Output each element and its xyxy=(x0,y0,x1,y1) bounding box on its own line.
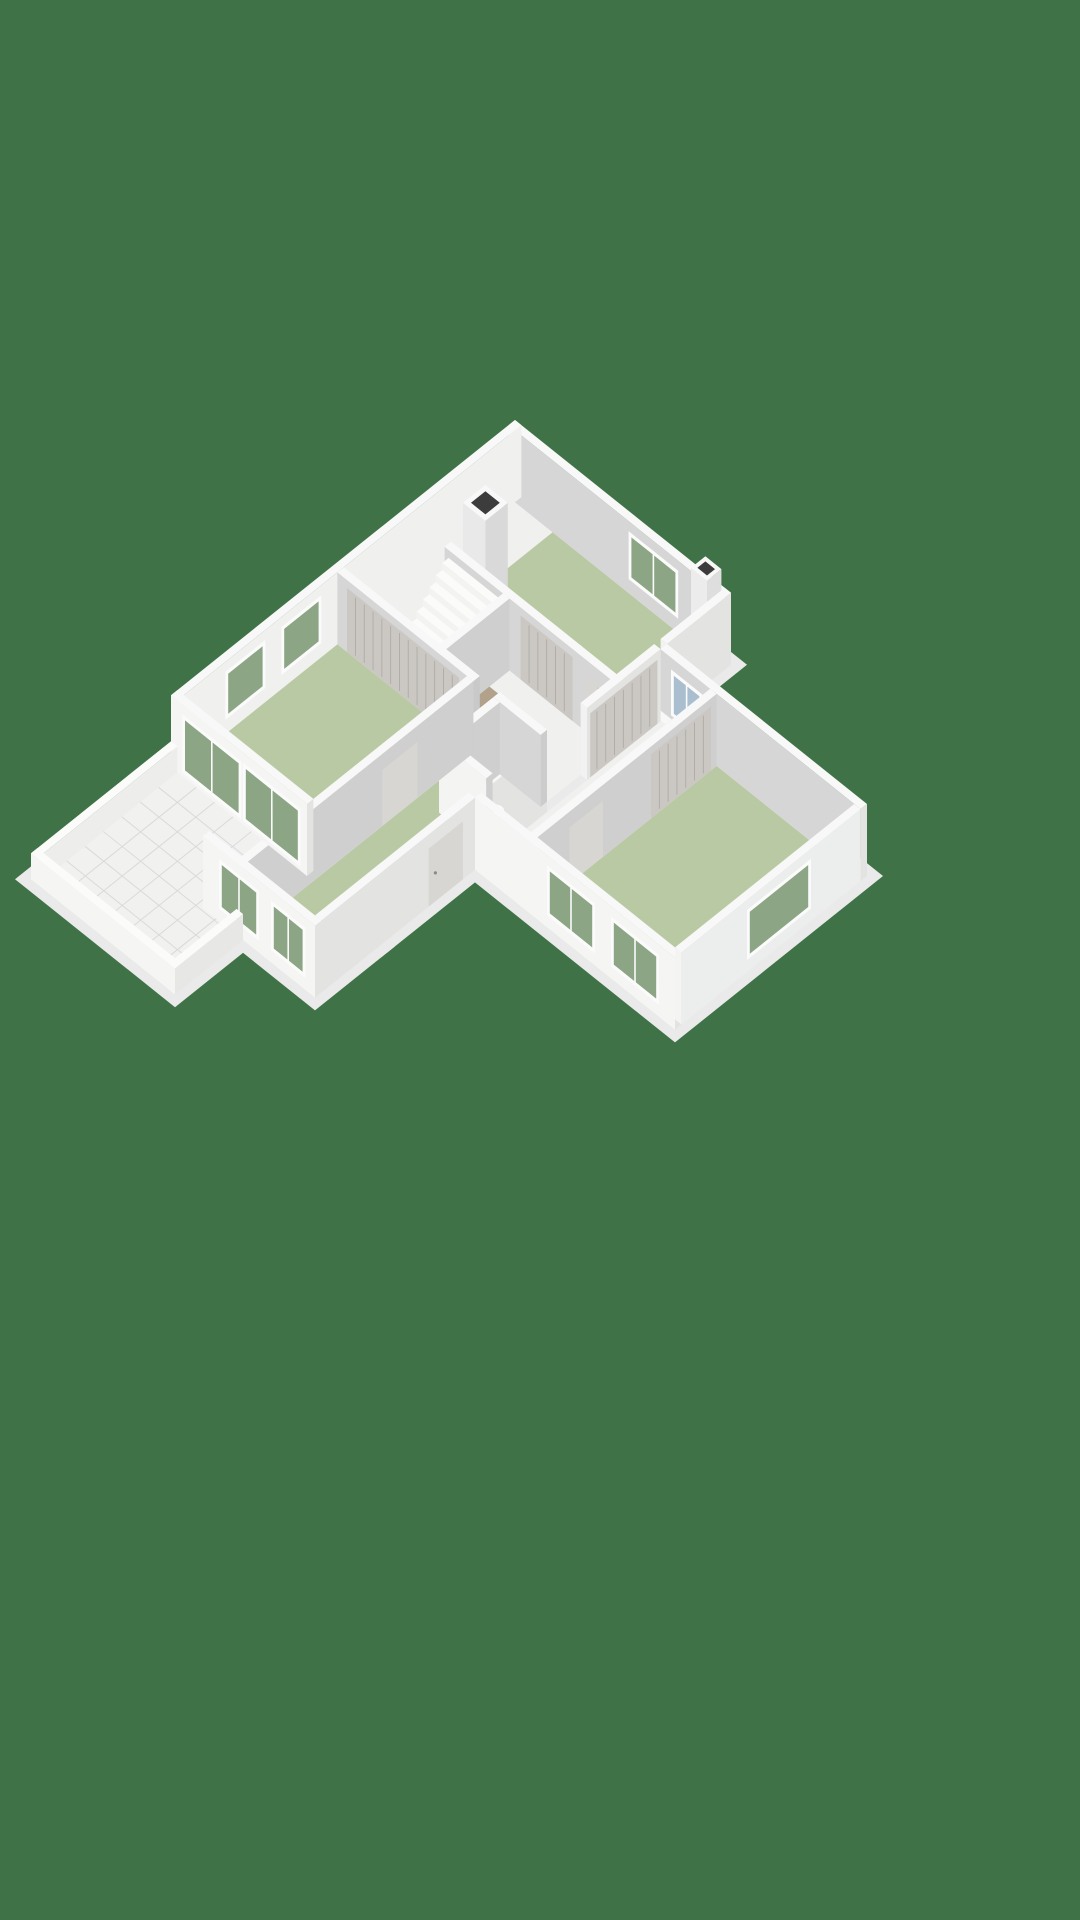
closet-east-bedroom-groove xyxy=(668,743,669,802)
closet-top-bedroom-groove xyxy=(546,639,547,698)
wall-wing-north-east-face xyxy=(861,804,867,881)
closet-wing-corridor-groove xyxy=(605,704,606,763)
door-handle xyxy=(434,871,437,874)
floorplan-canvas xyxy=(0,0,1080,1920)
closet-east-bedroom-groove xyxy=(703,715,704,774)
closet-wing-corridor-groove xyxy=(597,711,598,770)
closet-east-bedroom-groove xyxy=(659,750,660,809)
closet-living-room-groove xyxy=(381,619,382,678)
floorplan-svg xyxy=(0,0,1080,1920)
wall-wing-east-south-face xyxy=(675,947,681,1024)
closet-living-room-groove xyxy=(417,647,418,706)
terrace-wall-east-south-face xyxy=(169,963,175,994)
closet-living-room-groove xyxy=(390,626,391,685)
closet-top-bedroom-groove xyxy=(529,625,530,684)
wall-bay-south-east-face xyxy=(315,921,321,998)
closet-living-room-groove xyxy=(373,612,374,671)
wall-main-east-mid-a-south-face xyxy=(581,703,587,780)
closet-living-room-groove xyxy=(364,604,365,663)
closet-living-room-groove xyxy=(408,640,409,699)
closet-wing-corridor-groove xyxy=(614,697,615,756)
closet-east-bedroom-groove xyxy=(694,722,695,781)
closet-top-bedroom-groove xyxy=(564,653,565,712)
closet-living-room-groove xyxy=(399,633,400,692)
closet-wing-corridor-groove xyxy=(632,683,633,742)
wall-living-south-east-face xyxy=(307,799,313,876)
closet-east-bedroom-groove xyxy=(677,736,678,795)
closet-top-bedroom-groove xyxy=(555,646,556,705)
closet-east-bedroom-groove xyxy=(685,729,686,788)
closet-living-room-groove xyxy=(355,597,356,656)
closet-wing-corridor-groove xyxy=(641,676,642,735)
closet-living-room-groove xyxy=(425,654,426,713)
closet-top-bedroom-groove xyxy=(537,632,538,691)
closet-wing-corridor-groove xyxy=(623,690,624,749)
closet-wing-corridor-groove xyxy=(649,668,650,727)
wall-wc-north-east-face xyxy=(541,730,547,807)
